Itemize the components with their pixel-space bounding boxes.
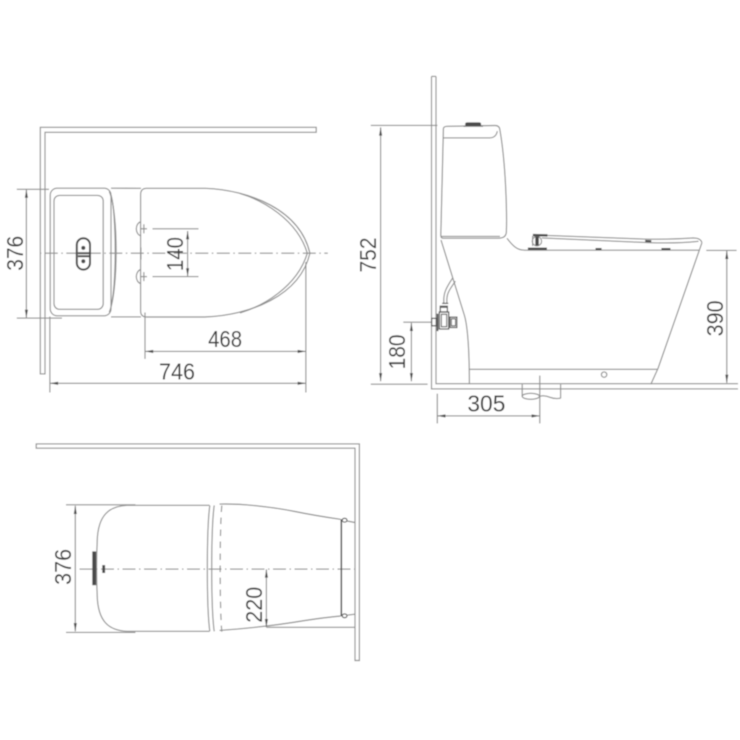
- svg-text:746: 746: [159, 359, 195, 385]
- svg-text:140: 140: [162, 237, 188, 271]
- svg-text:376: 376: [2, 236, 28, 271]
- svg-text:305: 305: [467, 390, 505, 416]
- svg-text:390: 390: [702, 300, 728, 336]
- svg-text:220: 220: [241, 587, 267, 623]
- svg-text:180: 180: [384, 334, 410, 369]
- svg-text:468: 468: [208, 326, 242, 352]
- svg-text:376: 376: [50, 549, 76, 585]
- svg-text:752: 752: [355, 238, 381, 273]
